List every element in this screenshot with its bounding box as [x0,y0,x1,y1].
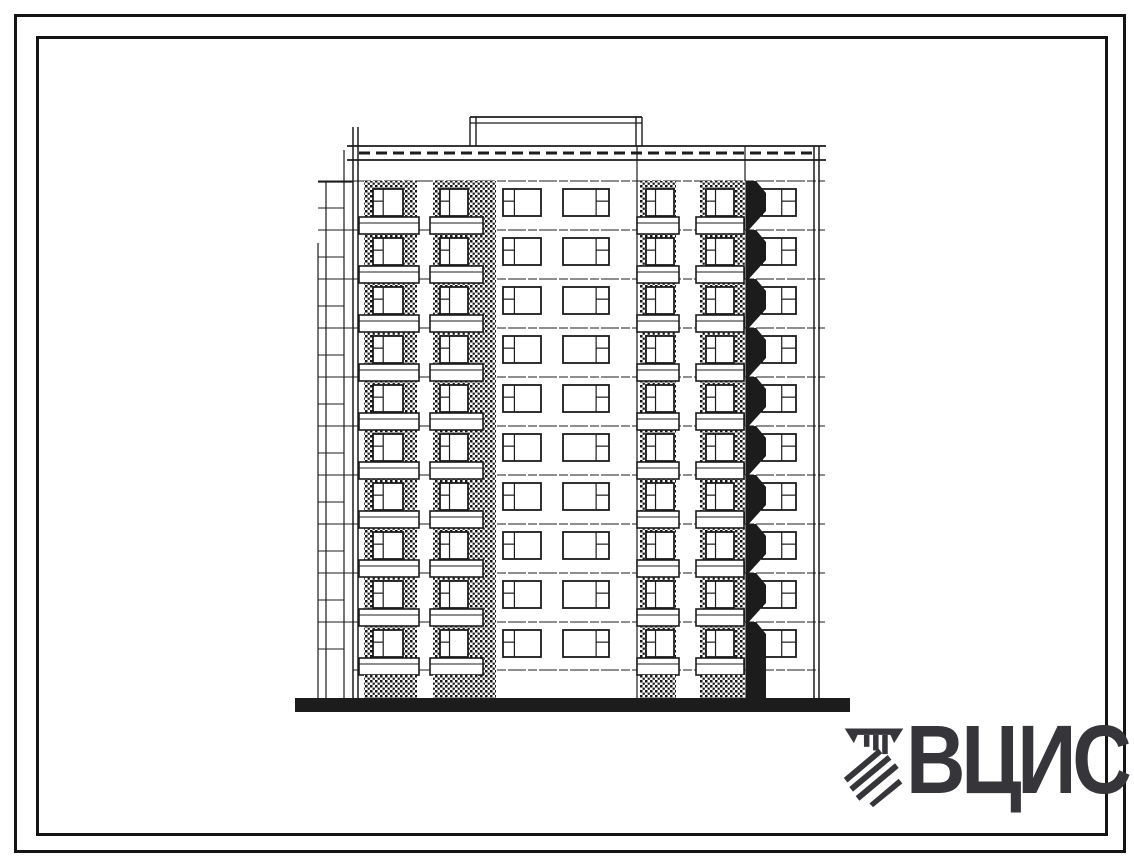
vcis-logo-text: ВЦИС [906,716,1128,804]
vcis-logo: ВЦИС [842,716,1134,808]
scanned-drawing-page: ВЦИС [0,0,1134,863]
diagonal-hatch-construction-emblem-icon [842,724,906,808]
